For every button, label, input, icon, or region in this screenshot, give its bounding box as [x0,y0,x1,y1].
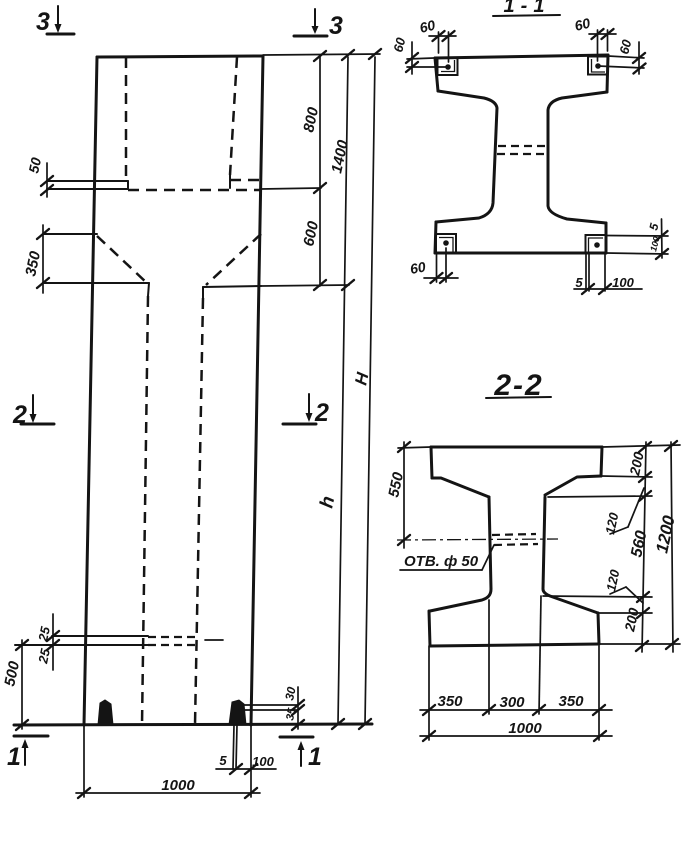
svg-text:100: 100 [252,754,274,769]
svg-text:350: 350 [558,693,584,710]
svg-text:ОТВ. ф 50: ОТВ. ф 50 [404,553,479,570]
svg-text:350: 350 [437,693,463,710]
svg-text:300: 300 [499,694,525,711]
svg-text:1000: 1000 [508,720,542,737]
svg-text:60: 60 [409,258,427,276]
svg-text:1: 1 [308,743,322,771]
svg-text:100: 100 [612,275,634,290]
svg-text:5: 5 [575,275,583,290]
svg-text:3: 3 [329,12,343,40]
svg-text:1: 1 [7,743,21,771]
svg-text:3: 3 [36,8,50,36]
svg-text:1000: 1000 [161,777,195,794]
svg-text:5: 5 [219,753,227,768]
